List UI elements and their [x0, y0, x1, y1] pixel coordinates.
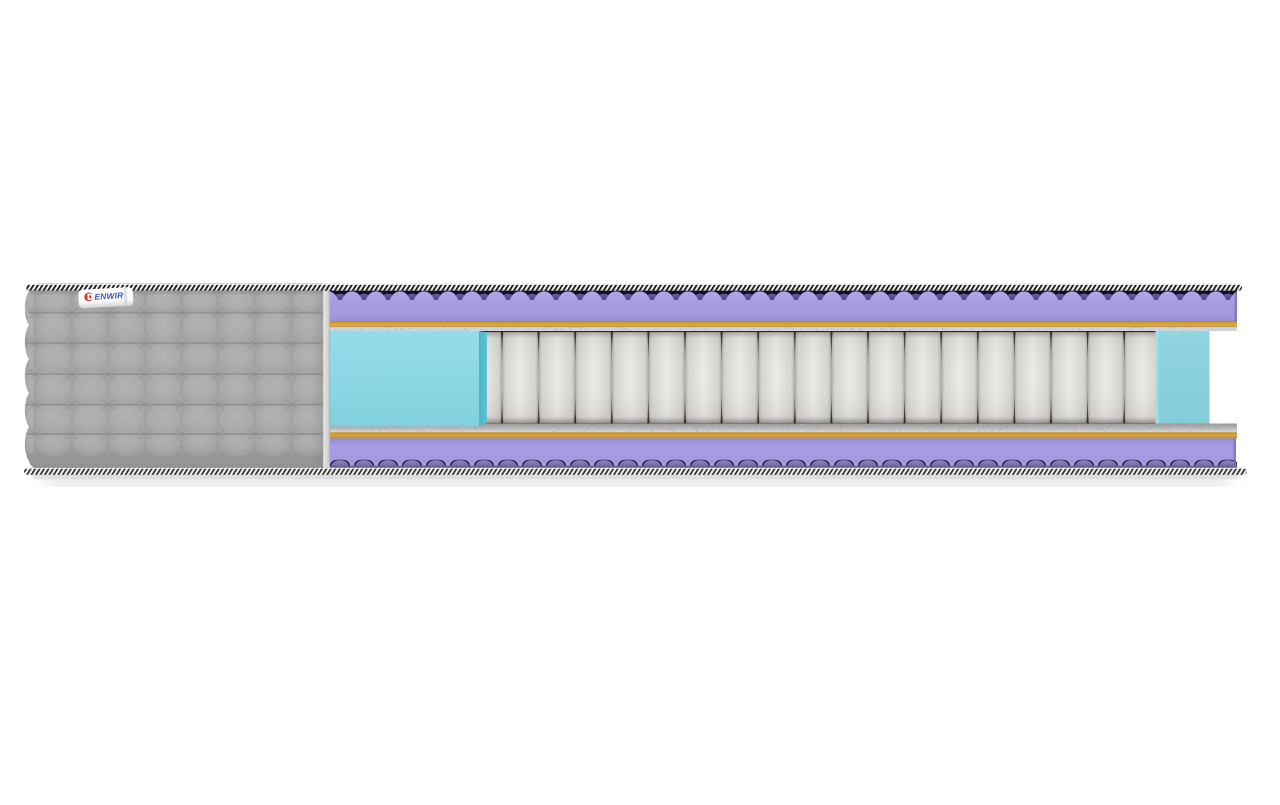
svg-text:ENWIR: ENWIR — [94, 290, 123, 301]
